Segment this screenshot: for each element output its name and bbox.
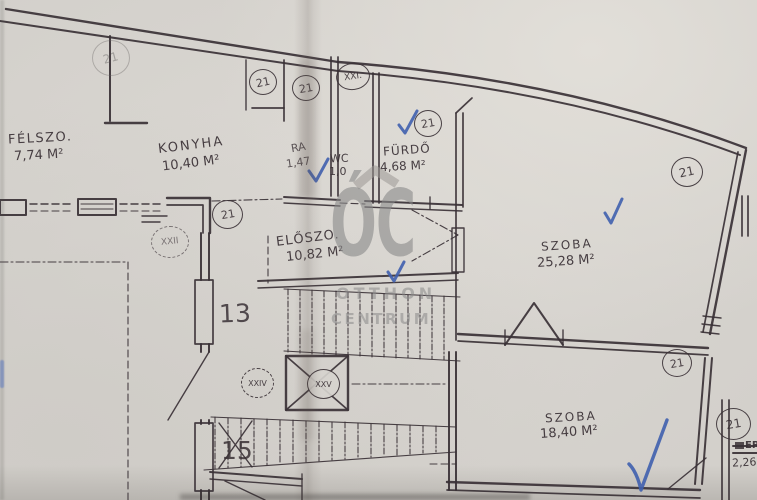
check-mark-icon [605, 199, 622, 223]
pen-marks [0, 0, 757, 500]
floor-plan-photo: FÉLSZO. 7,74 M² KONYHA 10,40 M² RA 1,47 … [0, 0, 757, 500]
check-mark-icon [309, 159, 328, 181]
check-mark-icon [388, 262, 404, 281]
check-mark-icon [399, 111, 417, 133]
check-mark-icon [629, 420, 667, 490]
